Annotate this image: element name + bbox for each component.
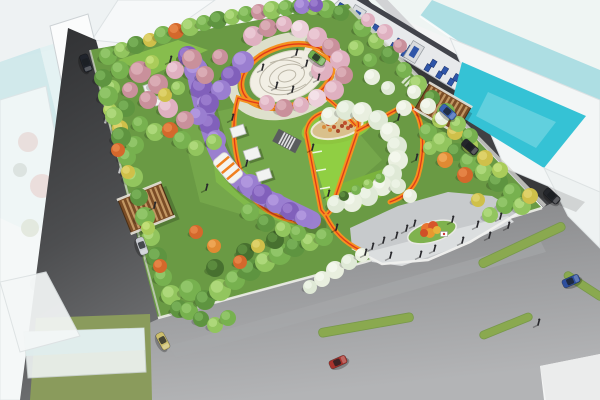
aerial-park-master-plan <box>0 0 600 400</box>
render-layers <box>0 0 600 400</box>
scene-svg <box>0 0 600 400</box>
